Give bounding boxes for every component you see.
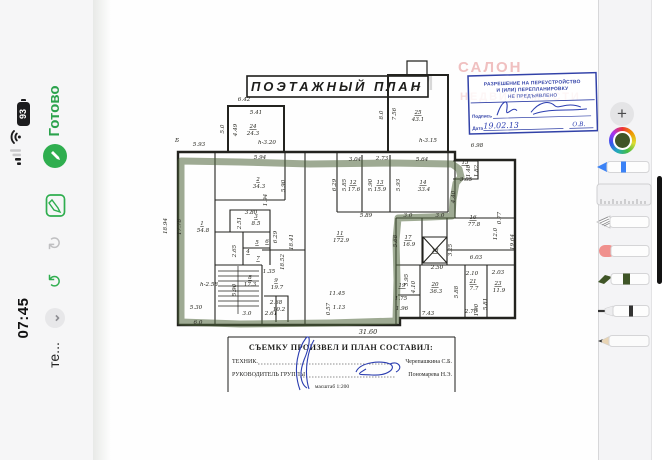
done-button[interactable]: Готово: [43, 71, 65, 151]
svg-text:1.35: 1.35: [263, 269, 276, 275]
clock: 07:45: [13, 283, 33, 353]
tool-ruler[interactable]: [595, 182, 653, 213]
svg-text:11.9: 11.9: [493, 288, 506, 294]
screenshot-root: { "status_bar": { "time": "07:45", "app_…: [0, 0, 670, 460]
tool-pencil[interactable]: [595, 332, 651, 355]
tool-fine-liner[interactable]: [595, 302, 651, 325]
svg-text:5.88: 5.88: [454, 285, 460, 298]
svg-text:5.81: 5.81: [483, 298, 489, 310]
svg-text:31.60: 31.60: [359, 328, 378, 336]
svg-text:h-3.20: h-3.20: [258, 140, 276, 146]
svg-text:17: 17: [404, 235, 412, 241]
svg-text:2.61: 2.61: [264, 311, 277, 317]
svg-text:8.5: 8.5: [252, 221, 261, 227]
svg-text:8: 8: [248, 275, 252, 281]
svg-text:19: 19: [398, 283, 406, 289]
svg-text:7.43: 7.43: [422, 311, 435, 317]
svg-text:2.51: 2.51: [237, 217, 243, 230]
svg-text:Б: Б: [174, 138, 179, 144]
svg-text:1.75: 1.75: [395, 296, 408, 302]
page-edge-shadow: [93, 0, 111, 460]
svg-text:18.52: 18.52: [280, 254, 286, 270]
svg-text:14: 14: [419, 180, 427, 186]
row2-name: Пономарева Н.Э.: [408, 372, 452, 378]
svg-text:5.7: 5.7: [412, 86, 421, 92]
svg-text:1.82: 1.82: [474, 164, 480, 177]
phone-chrome-left: 93 07:45 те... Готово ↻ ↺ ⌄: [0, 0, 94, 460]
ink-signature-2: [356, 362, 400, 375]
svg-text:25: 25: [413, 110, 422, 116]
svg-text:18.41: 18.41: [289, 234, 295, 250]
home-indicator[interactable]: [657, 176, 662, 284]
svg-text:172.9: 172.9: [333, 238, 349, 244]
markup-icon[interactable]: [45, 194, 66, 217]
plan-title: ПОЭТАЖНЫЙ ПЛАН: [251, 78, 423, 94]
stamp-initials: О.В.: [572, 121, 585, 128]
svg-text:11: 11: [336, 231, 343, 237]
svg-text:2.50: 2.50: [430, 265, 444, 271]
svg-text:36.3: 36.3: [430, 289, 443, 295]
svg-text:5.89: 5.89: [360, 213, 373, 219]
svg-text:2.10: 2.10: [465, 271, 479, 277]
svg-text:54.8: 54.8: [197, 228, 210, 234]
svg-text:2.65: 2.65: [232, 244, 238, 258]
svg-text:2.73: 2.73: [375, 156, 389, 162]
selected-color-swatch: [615, 133, 630, 148]
floor-plan-svg: САЛОН РИМ НЕДВИЖИМОСТИ ПОЭТАЖНЫЙ ПЛАН 6.…: [93, 0, 598, 460]
svg-text:12.0: 12.0: [493, 227, 499, 240]
add-tool-button[interactable]: +: [610, 102, 634, 126]
permission-stamp: РАЗРЕШЕНИЕ НА ПЕРЕУСТРОЙСТВО И (ИЛИ) ПЕР…: [468, 73, 597, 134]
svg-text:6.42: 6.42: [238, 97, 251, 103]
svg-text:h-3.15: h-3.15: [419, 138, 437, 144]
tool-pen[interactable]: [595, 158, 651, 181]
svg-text:3.0: 3.0: [404, 213, 413, 219]
svg-text:17.3: 17.3: [244, 282, 257, 288]
battery-icon: 93: [15, 99, 31, 129]
floor-plan-document[interactable]: САЛОН РИМ НЕДВИЖИМОСТИ ПОЭТАЖНЫЙ ПЛАН 6.…: [93, 0, 598, 460]
svg-text:6.03: 6.03: [470, 255, 483, 261]
svg-text:18.94: 18.94: [163, 218, 169, 234]
svg-text:2.70: 2.70: [464, 309, 478, 315]
svg-text:8.0: 8.0: [379, 110, 385, 119]
svg-text:7: 7: [256, 256, 260, 262]
svg-text:3.04: 3.04: [349, 157, 362, 163]
plan-title-box: ПОЭТАЖНЫЙ ПЛАН: [247, 76, 428, 97]
svg-text:4.40: 4.40: [451, 190, 457, 204]
svg-text:15.9: 15.9: [374, 187, 387, 193]
svg-text:1.96: 1.96: [396, 306, 409, 312]
svg-text:43.1: 43.1: [411, 117, 424, 123]
svg-text:21: 21: [468, 279, 476, 285]
svg-text:5.68: 5.68: [393, 234, 399, 247]
stamp-signature-label: Подпись: [472, 113, 492, 119]
svg-text:23: 23: [493, 281, 502, 287]
tool-palette: +: [599, 0, 652, 460]
svg-text:2.68: 2.68: [269, 300, 283, 306]
svg-text:h-2.58: h-2.58: [200, 282, 218, 288]
chevron-down-icon[interactable]: ⌄: [45, 308, 65, 328]
stamp-date-label: Дата: [472, 126, 483, 131]
svg-text:5.90: 5.90: [281, 179, 287, 192]
watermark-salon: САЛОН: [458, 59, 523, 76]
redo-icon[interactable]: ↻: [44, 232, 66, 254]
svg-text:3: 3: [254, 214, 258, 220]
svg-text:12: 12: [349, 180, 357, 186]
plan-labels: 6.425.415.04.492424.3h-3.20Б5.935.78.07.…: [163, 86, 516, 336]
row1-name: Черепашкина С.Б.: [405, 359, 452, 365]
svg-text:1.48: 1.48: [466, 164, 472, 177]
svg-text:0.77: 0.77: [497, 211, 503, 224]
svg-text:2: 2: [255, 177, 260, 183]
tool-lasso-pencil[interactable]: [595, 212, 651, 235]
svg-text:1.13: 1.13: [333, 305, 346, 311]
svg-text:33.4: 33.4: [418, 187, 431, 193]
svg-text:24.3: 24.3: [246, 131, 260, 137]
svg-text:6.29: 6.29: [332, 178, 338, 191]
svg-text:0.57: 0.57: [326, 302, 332, 315]
scale-label: масштаб 1:200: [315, 383, 349, 390]
title-block-heading: СЪЕМКУ ПРОИЗВЕЛ И ПЛАН СОСТАВИЛ:: [249, 343, 433, 352]
svg-text:11.45: 11.45: [329, 291, 345, 297]
markup-toolbar: +: [598, 0, 670, 460]
svg-text:5.93: 5.93: [396, 178, 402, 191]
undo-icon[interactable]: ↺: [44, 270, 66, 292]
svg-text:5.30: 5.30: [190, 305, 203, 311]
svg-text:16: 16: [469, 215, 477, 221]
svg-text:5.0: 5.0: [220, 124, 226, 133]
pencil-circle-icon[interactable]: [43, 144, 67, 168]
svg-text:24: 24: [248, 124, 257, 130]
svg-text:16.9: 16.9: [403, 242, 416, 248]
svg-text:5.64: 5.64: [416, 157, 429, 163]
svg-text:4: 4: [245, 249, 250, 255]
app-title: те...: [44, 325, 64, 385]
color-picker[interactable]: [609, 127, 636, 154]
svg-text:9: 9: [274, 278, 278, 284]
svg-text:2.03: 2.03: [491, 270, 505, 276]
svg-text:5.41: 5.41: [250, 110, 262, 116]
svg-text:7.56: 7.56: [392, 107, 398, 120]
svg-text:20: 20: [430, 282, 439, 288]
title-block: СЪЕМКУ ПРОИЗВЕЛ И ПЛАН СОСТАВИЛ: ТЕХНИК.…: [228, 337, 455, 392]
svg-text:6: 6: [265, 239, 269, 245]
row2-label: РУКОВОДИТЕЛЬ ГРУППЫ: [232, 372, 306, 378]
svg-text:3.0: 3.0: [243, 311, 252, 317]
svg-text:6.98: 6.98: [471, 143, 484, 149]
wifi-icon: [8, 128, 22, 146]
svg-text:17.6: 17.6: [348, 187, 361, 193]
svg-text:5.94: 5.94: [254, 155, 267, 161]
svg-text:17.78: 17.78: [177, 219, 183, 235]
svg-text:1.94: 1.94: [263, 193, 269, 206]
svg-text:7.7: 7.7: [470, 286, 479, 292]
row1-label: ТЕХНИК.: [232, 359, 258, 365]
svg-text:18: 18: [431, 248, 439, 254]
tool-eraser[interactable]: [595, 242, 651, 265]
svg-text:5.93: 5.93: [193, 142, 206, 148]
svg-text:4.10: 4.10: [411, 280, 417, 294]
svg-text:34.3: 34.3: [253, 184, 266, 190]
svg-text:6.29: 6.29: [273, 230, 279, 243]
stamp-date-value: 19.02.13: [483, 121, 519, 131]
svg-text:77.8: 77.8: [468, 222, 481, 228]
tool-highlighter[interactable]: [595, 270, 651, 293]
svg-text:13: 13: [376, 180, 384, 186]
svg-text:3.25: 3.25: [448, 243, 454, 256]
svg-text:1: 1: [200, 221, 204, 227]
svg-text:5.90: 5.90: [232, 283, 238, 296]
svg-text:19.7: 19.7: [271, 285, 284, 291]
svg-text:3.0: 3.0: [436, 213, 445, 219]
svg-text:3.05: 3.05: [460, 177, 473, 183]
battery-percent: 93: [18, 109, 28, 119]
svg-text:6.0: 6.0: [194, 320, 203, 326]
svg-text:5: 5: [255, 240, 259, 246]
svg-text:4.49: 4.49: [233, 123, 239, 137]
svg-text:19.64: 19.64: [510, 234, 516, 250]
cellular-signal-icon: [8, 148, 22, 166]
